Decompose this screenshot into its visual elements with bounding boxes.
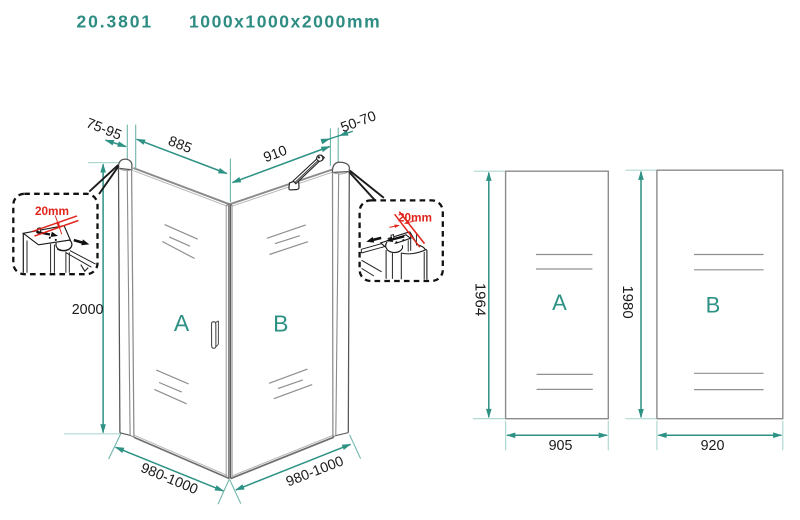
svg-text:2000: 2000	[72, 302, 104, 318]
svg-text:20mm: 20mm	[35, 204, 69, 218]
svg-text:B: B	[706, 293, 721, 318]
svg-text:20mm: 20mm	[398, 210, 432, 224]
svg-text:B: B	[273, 310, 288, 336]
svg-text:A: A	[552, 290, 567, 315]
svg-text:920: 920	[701, 438, 725, 454]
svg-text:905: 905	[549, 438, 573, 454]
svg-text:1964: 1964	[471, 283, 488, 316]
svg-text:1980: 1980	[619, 285, 636, 318]
svg-text:1000x1000x2000mm: 1000x1000x2000mm	[189, 12, 381, 32]
svg-text:A: A	[174, 310, 190, 336]
svg-text:20.3801: 20.3801	[77, 12, 154, 32]
